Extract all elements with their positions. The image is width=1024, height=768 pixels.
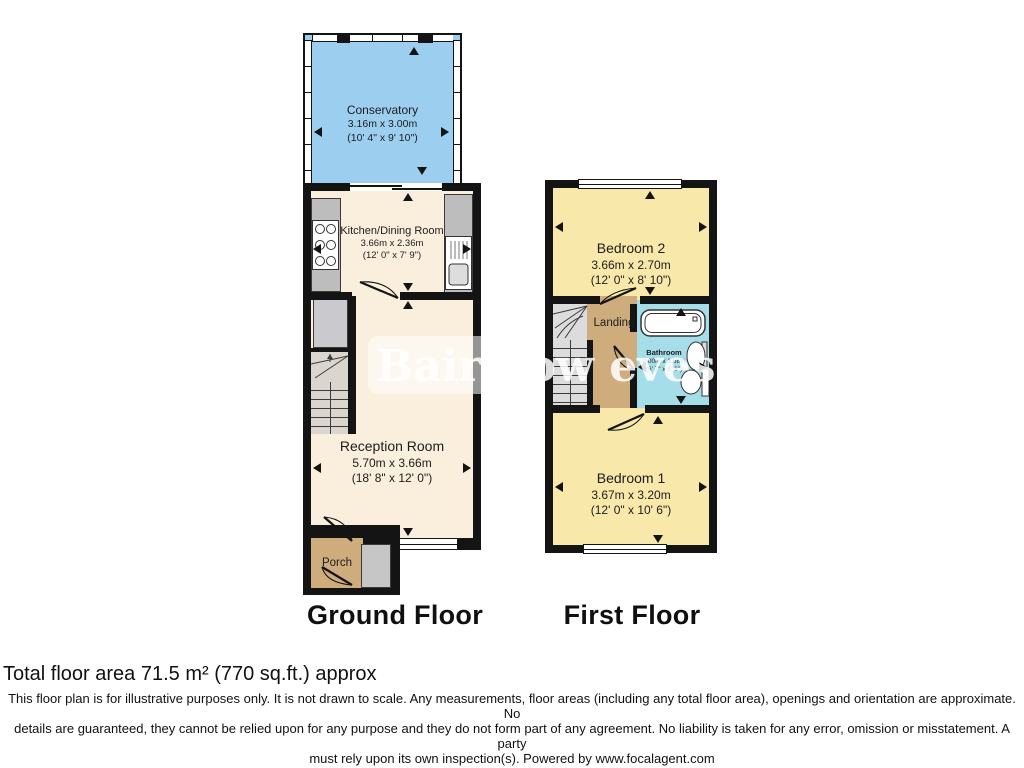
ground-floor-title: Ground Floor <box>295 600 495 631</box>
disclaimer-line: details are guaranteed, they cannot be r… <box>0 721 1024 751</box>
dim-arrow-up <box>409 47 419 55</box>
bedroom2-label: Bedroom 2 3.66m x 2.70m (12' 0" x 8' 10"… <box>553 240 709 289</box>
ff-divider1-left <box>553 296 600 304</box>
ff-divider1-right <box>640 296 709 304</box>
disclaimer-line: must rely upon its own inspection(s). Po… <box>0 751 1024 766</box>
sliding-door <box>350 183 442 191</box>
first-floor-title: First Floor <box>532 600 732 631</box>
dim-arrow-left <box>313 244 321 254</box>
door-swing-kitchen <box>350 276 402 328</box>
bedroom1-window <box>583 544 667 554</box>
conservatory-post <box>337 35 350 43</box>
watermark-text: Bairstow eves <box>376 345 716 389</box>
dim-arrow-down <box>403 283 413 291</box>
dim-arrow-right <box>699 222 707 232</box>
porch-label: Porch <box>311 556 363 571</box>
conservatory-room: Conservatory 3.16m x 3.00m (10' 4" x 9' … <box>303 33 462 185</box>
porch-door-swings <box>308 505 368 595</box>
room-name: Bedroom 2 <box>553 240 709 258</box>
room-dims-metric: 3.67m x 3.20m <box>553 488 709 503</box>
reception-label: Reception Room 5.70m x 3.66m (18' 8" x 1… <box>311 438 473 487</box>
reception-window <box>398 538 458 550</box>
room-dims-metric: 3.66m x 2.36m <box>311 238 473 250</box>
room-dims-imperial: (10' 4" x 9' 10") <box>305 132 460 145</box>
disclaimer-line: This floor plan is for illustrative purp… <box>0 691 1024 721</box>
dim-arrow-up <box>645 191 655 199</box>
total-floor-area: Total floor area 71.5 m² (770 sq.ft.) ap… <box>3 663 377 686</box>
floorplan-page: { "ground_floor": { "label": "Ground Flo… <box>0 0 1024 768</box>
dim-arrow-left <box>555 482 563 492</box>
dim-arrow-down <box>676 396 686 404</box>
gf-stairs-winder <box>311 352 348 382</box>
room-dims-imperial: (12' 0" x 7' 9") <box>311 250 473 262</box>
room-dims-metric: 3.66m x 2.70m <box>553 258 709 273</box>
ff-stairs-winder <box>553 304 587 340</box>
room-name: Bedroom 1 <box>553 470 709 488</box>
room-name: Kitchen/Dining Room <box>311 224 473 238</box>
room-name: Conservatory <box>305 103 460 118</box>
room-dims-metric: 3.16m x 3.00m <box>305 118 460 131</box>
dim-arrow-left <box>313 463 321 473</box>
disclaimer: This floor plan is for illustrative purp… <box>0 691 1024 766</box>
room-dims-imperial: (12' 0" x 8' 10") <box>553 273 709 288</box>
dim-arrow-up <box>653 416 663 424</box>
gf-stairs <box>311 382 348 434</box>
dim-arrow-down <box>653 535 663 543</box>
bathtub-icon <box>640 309 706 337</box>
dim-arrow-down <box>645 287 655 295</box>
dim-arrow-down <box>417 167 427 175</box>
dim-arrow-up <box>403 193 413 201</box>
room-dims-imperial: (18' 8" x 12' 0") <box>311 471 473 486</box>
room-name: Reception Room <box>311 438 473 456</box>
bedroom1-label: Bedroom 1 3.67m x 3.20m (12' 0" x 10' 6"… <box>553 470 709 519</box>
kitchen-label: Kitchen/Dining Room 3.66m x 2.36m (12' 0… <box>311 224 473 262</box>
landing-label: Landing <box>584 316 644 331</box>
dim-arrow-down <box>403 528 413 536</box>
room-name: Porch <box>311 556 363 571</box>
dim-arrow-right <box>463 463 471 473</box>
door-swing-bedroom1 <box>600 408 648 436</box>
gf-cupboard <box>313 298 348 348</box>
gf-divider-right <box>400 292 473 300</box>
room-dims-metric: 5.70m x 3.66m <box>311 456 473 471</box>
bedroom2-window <box>578 179 682 189</box>
gf-wall-left <box>303 183 311 550</box>
conservatory-post <box>418 35 433 43</box>
ff-divider2-left <box>553 405 600 413</box>
dim-arrow-right <box>699 482 707 492</box>
ff-divider2-right <box>645 405 709 413</box>
dim-arrow-up <box>676 308 686 316</box>
room-name: Landing <box>584 316 644 331</box>
gf-divider-left <box>311 292 352 300</box>
conservatory-label: Conservatory 3.16m x 3.00m (10' 4" x 9' … <box>305 103 460 145</box>
gf-cupboard-divider <box>311 348 348 352</box>
dim-arrow-up <box>403 301 413 309</box>
room-dims-imperial: (12' 0" x 10' 6") <box>553 503 709 518</box>
dim-arrow-left <box>555 222 563 232</box>
dim-arrow-right <box>463 244 471 254</box>
